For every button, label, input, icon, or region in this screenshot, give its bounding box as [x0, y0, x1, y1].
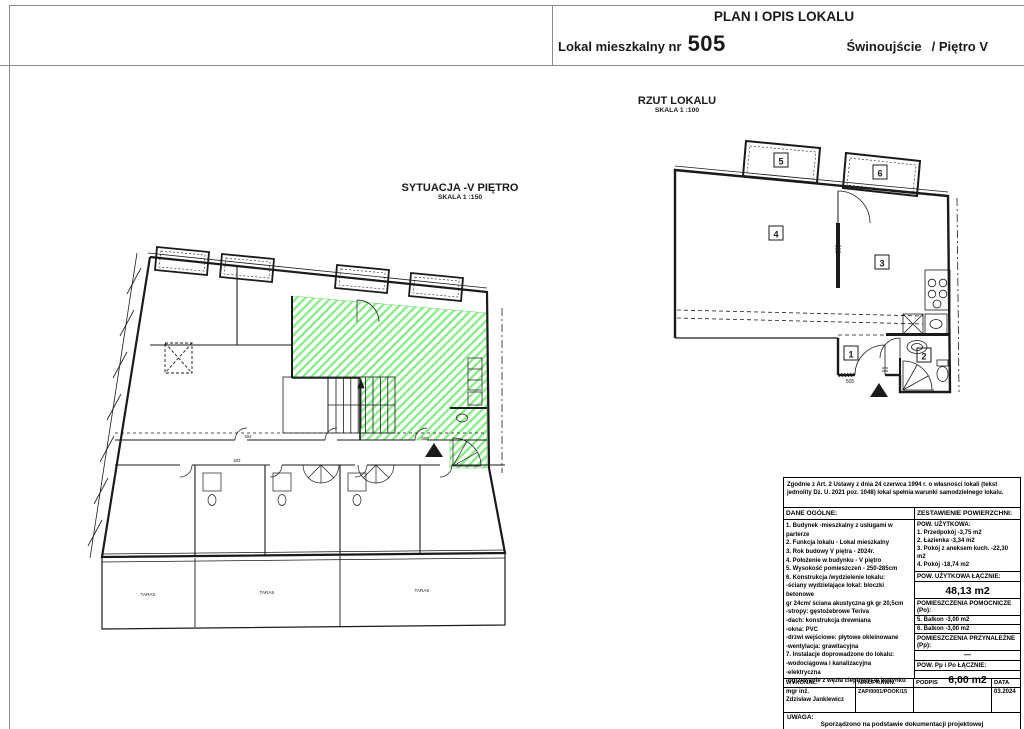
facade-outer-line [675, 166, 948, 192]
date-value: 03.2024 [992, 688, 1020, 712]
kitchen-annex [925, 270, 950, 310]
general-data-header: DANE OGÓLNE: [784, 508, 915, 519]
aux-total-header: POW. Pp i Po ŁĄCZNIE: [915, 661, 1020, 671]
terrace-label-3: TARAS [415, 588, 430, 593]
unit-outline [675, 170, 950, 392]
remark-text: Sporządzono na podstawie dokumentacji pr… [787, 721, 1017, 728]
usable-total-value: 48,13 m2 [915, 582, 1020, 599]
remark-header: UWAGA: [787, 714, 1017, 721]
header-separator-line [0, 65, 1024, 66]
room-number-4: 4 [773, 230, 778, 240]
page-title: PLAN I OPIS LOKALU [553, 9, 1015, 24]
license-column: NR UPRAWN. ZAP/0001/POOK/15 [856, 679, 914, 712]
frame-left-line [9, 5, 10, 729]
room-number-2: 2 [921, 352, 926, 362]
legal-note: Zgodnie z Art. 2 Ustawy z dnia 24 czerwc… [784, 478, 1020, 508]
site-hatch-lines [88, 253, 141, 558]
unit-number: 505 [688, 31, 726, 57]
location-floor: Świnoujście / Piętro V [847, 39, 1011, 57]
french-door-fans [303, 465, 394, 483]
license-value: ZAP/0001/POOK/15 [856, 688, 913, 712]
area-summary-header: ZESTAWIENIE POWIERZCHNI: [915, 508, 1020, 519]
remark-row: UWAGA: Sporządzono na podstawie dokument… [784, 712, 1020, 729]
location-label: Świnoujście [847, 39, 922, 54]
auxiliary-item-balcony-6: 6. Balkon -3,00 m2 [915, 625, 1020, 634]
general-data-list: 1. Budynek -mieszkalny z usługami w part… [784, 520, 915, 678]
situation-plan-scale: SKALA 1 :150 [395, 194, 525, 201]
room-number-5: 5 [778, 157, 783, 167]
corridor-label-504: 504 [245, 434, 253, 439]
belonging-rooms-header: POMIESZCZENIA PRZYNALEŻNE (Pp): [915, 634, 1020, 651]
date-header: DATA [992, 679, 1020, 688]
title-block-table: Zgodnie z Art. 2 Ustawy z dnia 24 czerwc… [783, 477, 1021, 729]
room-number-1: 1 [848, 350, 853, 360]
header-subrow: Lokal mieszkalny nr 505 Świnoujście / Pi… [558, 31, 1010, 57]
highlighted-unit-505-area [292, 296, 487, 468]
situation-plan-title: SYTUACJA -V PIĘTRO [395, 182, 525, 194]
auxiliary-item-balcony-5: 5. Balkon -3,00 m2 [915, 616, 1020, 625]
auxiliary-rooms-header: POMIESZCZENIA POMOCNICZE (Po): [915, 599, 1020, 616]
elevator-shaft [165, 343, 192, 373]
situation-plan-drawing: TARAS TARAS TARAS 505 504 503 [85, 228, 555, 648]
mirror-dashdot-line [957, 198, 959, 392]
terrace-label-2: TARAS [260, 590, 275, 595]
room-number-boxes [769, 226, 931, 362]
belonging-rooms-value: — [915, 651, 1020, 661]
situation-unit-label: 505 [421, 436, 429, 441]
floor-label: / Piętro V [932, 39, 988, 54]
executor-value: mgr inż. Zdzisław Jankiewicz [784, 688, 855, 712]
ceiling-dashed-lines [677, 310, 923, 324]
terrace-label-1: TARAS [141, 592, 156, 597]
unit-plan-scale: SKALA 1 :100 [607, 107, 747, 114]
table-body: 1. Budynek -mieszkalny z usługami w part… [784, 520, 1020, 678]
usable-total-header: POW. UŻYTKOWA ŁĄCZNIE: [915, 572, 1020, 582]
area-summary-column: POW. UŻYTKOWA: 1. Przedpokój -3,75 m2 2.… [915, 520, 1020, 678]
date-column: DATA 03.2024 [992, 679, 1020, 712]
unit-title: Lokal mieszkalny nr 505 [558, 31, 726, 57]
unit-plan-title: RZUT LOKALU [607, 95, 747, 107]
usable-area-list: POW. UŻYTKOWA: 1. Przedpokój -3,75 m2 2.… [915, 520, 1020, 572]
entrance-triangle-icon [870, 383, 888, 397]
table-section-headers: DANE OGÓLNE: ZESTAWIENIE POWIERZCHNI: [784, 508, 1020, 520]
executor-column: WYKONAŁ: mgr inż. Zdzisław Jankiewicz [784, 679, 856, 712]
unit-label-prefix: Lokal mieszkalny nr [558, 39, 682, 54]
terrace-band: TARAS TARAS TARAS [102, 553, 505, 629]
situation-plan-title-block: SYTUACJA -V PIĘTRO SKALA 1 :150 [395, 182, 525, 201]
room-number-6: 6 [877, 169, 882, 179]
signature-value [914, 688, 991, 712]
unit-plan-title-block: RZUT LOKALU SKALA 1 :100 [607, 95, 747, 114]
plan-document-page: PLAN I OPIS LOKALU Lokal mieszkalny nr 5… [0, 0, 1024, 729]
corridor-label-503: 503 [234, 458, 242, 463]
signature-column: PODPIS [914, 679, 992, 712]
license-header: NR UPRAWN. [856, 679, 913, 688]
executor-header: WYKONAŁ: [784, 679, 855, 688]
unit-entrance-label: 505 [846, 379, 855, 385]
bathroom-door [880, 338, 900, 375]
signature-row: WYKONAŁ: mgr inż. Zdzisław Jankiewicz NR… [784, 678, 1020, 712]
room-number-3: 3 [879, 259, 884, 269]
frame-top-line [9, 5, 1024, 6]
unit-plan-drawing: 5 6 [653, 128, 975, 424]
signature-header: PODPIS [914, 679, 991, 688]
partition-wall [835, 191, 870, 288]
bath-fixtures [203, 473, 366, 506]
entrance-triangle-icon [425, 443, 443, 457]
